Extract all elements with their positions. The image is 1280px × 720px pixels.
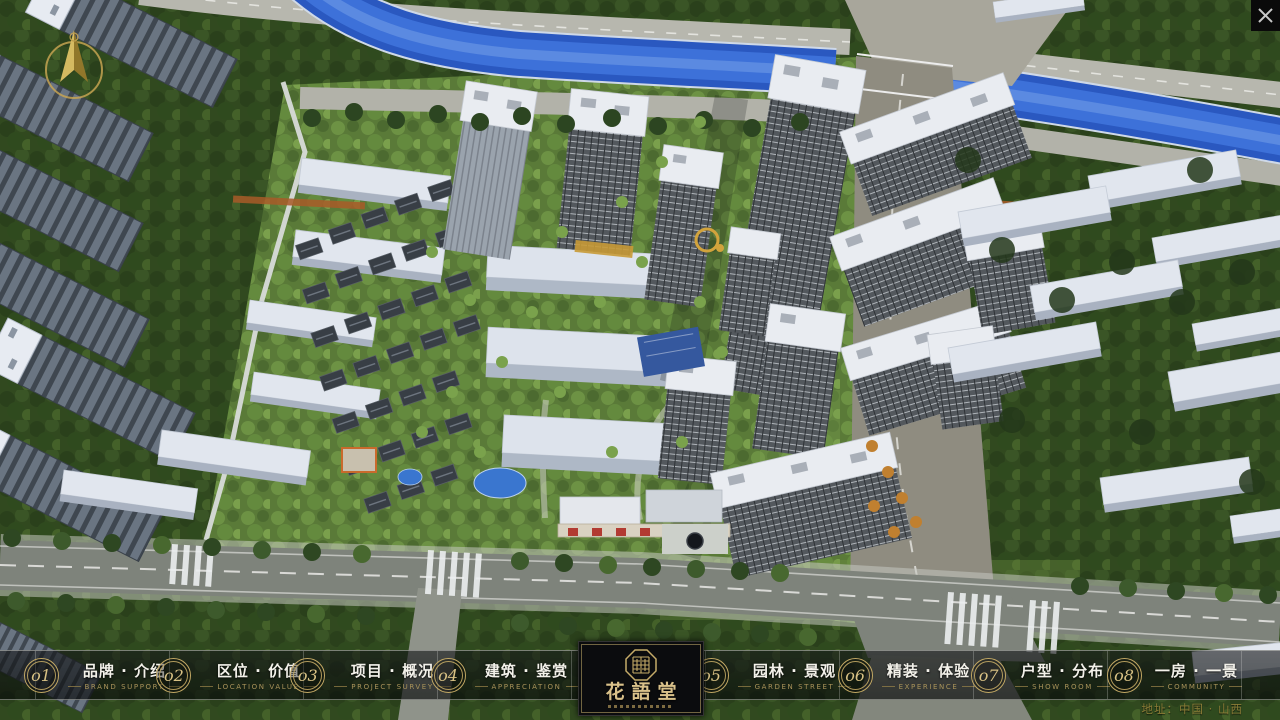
brand-seal-icon — [625, 649, 657, 681]
item-number-badge: o4 — [431, 658, 466, 693]
nav-label-zh: 建筑 · 鉴赏 — [485, 660, 568, 681]
nav-label-zh: 园林 · 景观 — [753, 660, 836, 681]
nav-label-zh: 一房 · 一景 — [1155, 660, 1238, 681]
nav-label-zh: 品牌 · 介绍 — [83, 660, 166, 681]
nav-label-zh: 户型 · 分布 — [1021, 660, 1104, 681]
brand-logo-panel[interactable]: 花語堂 — [578, 641, 704, 716]
item-number-badge: o8 — [1107, 658, 1142, 693]
compass — [34, 22, 114, 106]
nav-item-project-overview[interactable]: o3 项目 · 概况 PROJECT SURVEY — [303, 651, 437, 699]
brand-caption — [608, 705, 674, 708]
item-number-badge: o6 — [838, 658, 873, 693]
nav-item-room-view[interactable]: o8 一房 · 一景 COMMUNITY — [1107, 651, 1241, 699]
nav-item-architecture[interactable]: o4 建筑 · 鉴赏 APPRECIATION — [437, 651, 571, 699]
nav-label-en: COMMUNITY — [1168, 683, 1226, 691]
project-address: 地址：中国 · 山西 — [1142, 701, 1243, 717]
nav-item-brand-intro[interactable]: o1 品牌 · 介绍 BRAND SUPPORT — [35, 651, 169, 699]
nav-item-interior-experience[interactable]: o6 精装 · 体验 EXPERIENCE — [839, 651, 973, 699]
item-number-badge: o1 — [24, 658, 59, 693]
nav-label-en: APPRECIATION — [492, 683, 562, 691]
nav-item-landscape[interactable]: o5 园林 · 景观 GARDEN STREET — [705, 651, 839, 699]
item-number-badge: o2 — [156, 658, 191, 693]
nav-item-floorplans[interactable]: o7 户型 · 分布 SHOW ROOM — [973, 651, 1107, 699]
nav-item-location-value[interactable]: o2 区位 · 价值 LOCATION VALUE — [169, 651, 303, 699]
compass-needle-light — [60, 30, 74, 82]
nav-label-en: EXPERIENCE — [899, 683, 959, 691]
nav-label-en: SHOW ROOM — [1032, 683, 1093, 691]
nav-label-en: BRAND SUPPORT — [85, 683, 165, 691]
close-icon — [1258, 8, 1273, 23]
item-number-badge: o7 — [971, 658, 1006, 693]
nav-label-zh: 区位 · 价值 — [217, 660, 300, 681]
nav-label-zh: 项目 · 概况 — [351, 660, 434, 681]
nav-label-en: GARDEN STREET — [755, 683, 835, 691]
sales-presentation-screen: o1 品牌 · 介绍 BRAND SUPPORT o2 区位 · 价值 LOCA… — [0, 0, 1280, 720]
brand-name: 花語堂 — [598, 683, 683, 702]
aerial-masterplan-render — [0, 0, 1280, 720]
item-number-badge: o3 — [290, 658, 325, 693]
nav-label-en: PROJECT SURVEY — [351, 683, 433, 691]
nav-label-en: LOCATION VALUE — [217, 683, 299, 691]
close-button[interactable] — [1251, 0, 1280, 31]
compass-needle-dark — [74, 30, 88, 82]
nav-label-zh: 精装 · 体验 — [887, 660, 970, 681]
